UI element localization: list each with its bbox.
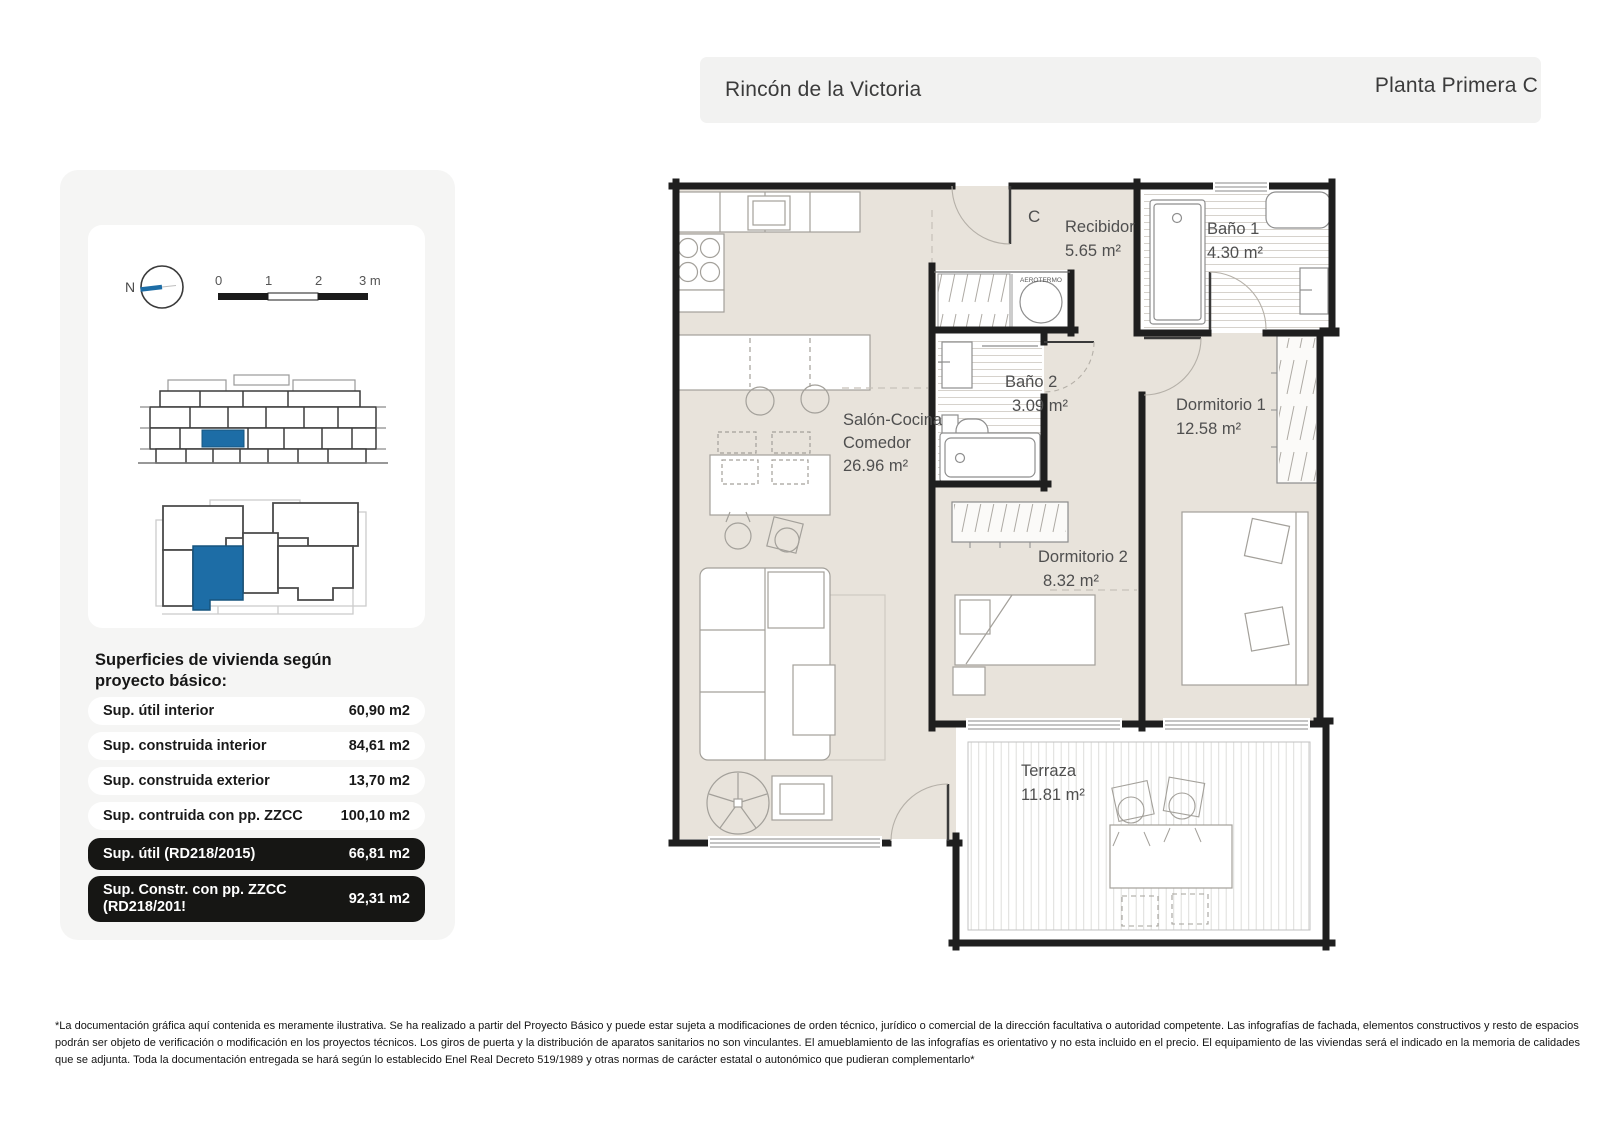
scale-bar: 0 1 2 3 m xyxy=(213,255,388,310)
surface-row: Sup. construida exterior 13,70 m2 xyxy=(88,767,425,795)
disclaimer-line: podrán ser objeto de verificación o modi… xyxy=(55,1035,1600,1052)
highlighted-unit-elevation xyxy=(202,430,244,447)
scale-tick: 3 m xyxy=(359,273,381,288)
aerotermo-unit xyxy=(1020,281,1062,323)
floor-plan: AEROTERMO xyxy=(660,170,1350,960)
scale-tick: 1 xyxy=(265,273,272,288)
surface-row-highlight: Sup. útil (RD218/2015) 66,81 m2 xyxy=(88,838,425,870)
room-name: Baño 2 xyxy=(1005,373,1057,391)
surface-value: 60,90 m2 xyxy=(349,703,410,719)
surface-value: 13,70 m2 xyxy=(349,773,410,789)
surface-value: 66,81 m2 xyxy=(349,846,410,862)
room-name: Terraza xyxy=(1021,762,1077,780)
surface-label: Sup. construida interior xyxy=(103,738,267,754)
surface-row: Sup. contruida con pp. ZZCC 100,10 m2 xyxy=(88,802,425,830)
scale-tick: 2 xyxy=(315,273,322,288)
compass-icon: N xyxy=(120,258,210,318)
surface-label: Sup. Constr. con pp. ZZCC (RD218/201! xyxy=(103,882,287,916)
surface-value: 92,31 m2 xyxy=(349,891,410,907)
surface-label: Sup. útil (RD218/2015) xyxy=(103,846,255,862)
room-area: 11.81 m² xyxy=(1021,786,1085,804)
room-name: Comedor xyxy=(843,434,911,452)
aerotermo-label: AEROTERMO xyxy=(1020,277,1062,284)
surface-value: 100,10 m2 xyxy=(341,808,410,824)
disclaimer-line: *La documentación gráfica aquí contenida… xyxy=(55,1018,1600,1035)
room-area: 8.32 m² xyxy=(1043,572,1099,590)
key-plan-diagram xyxy=(148,488,376,620)
room-name: Baño 1 xyxy=(1207,220,1259,238)
highlighted-unit-keyplan xyxy=(193,546,243,610)
room-name: Salón-Cocina xyxy=(843,411,943,429)
sidebar-panel: N 0 1 2 3 m xyxy=(60,170,455,940)
disclaimer-line: que se adjunta. Toda la documentación en… xyxy=(55,1052,1600,1069)
location-title: Rincón de la Victoria xyxy=(725,78,921,102)
surface-row-highlight: Sup. Constr. con pp. ZZCC (RD218/201! 92… xyxy=(88,876,425,922)
unit-letter: C xyxy=(1028,207,1040,226)
surface-label: Sup. contruida con pp. ZZCC xyxy=(103,808,303,824)
floorplan-sheet: Rincón de la Victoria Planta Primera C N… xyxy=(0,0,1600,1131)
disclaimer: *La documentación gráfica aquí contenida… xyxy=(55,1018,1600,1069)
room-name: Recibidor xyxy=(1065,218,1135,236)
surface-row: Sup. construida interior 84,61 m2 xyxy=(88,732,425,760)
room-name: Dormitorio 2 xyxy=(1038,548,1128,566)
room-area: 26.96 m² xyxy=(843,457,909,475)
compass-north-label: N xyxy=(125,279,135,295)
room-area: 3.09 m² xyxy=(1012,397,1068,415)
surface-row: Sup. útil interior 60,90 m2 xyxy=(88,697,425,725)
surface-label: Sup. útil interior xyxy=(103,703,214,719)
surface-label: Sup. construida exterior xyxy=(103,773,270,789)
room-area: 4.30 m² xyxy=(1207,244,1263,262)
surfaces-title: Superficies de vivienda según proyecto b… xyxy=(95,650,332,692)
room-area: 5.65 m² xyxy=(1065,242,1121,260)
entry-closet: AEROTERMO xyxy=(936,270,1071,330)
surface-value: 84,61 m2 xyxy=(349,738,410,754)
building-elevation-diagram xyxy=(138,370,388,472)
room-name: Dormitorio 1 xyxy=(1176,396,1266,414)
page-title: Planta Primera C xyxy=(1375,74,1538,98)
scale-tick: 0 xyxy=(215,273,222,288)
room-area: 12.58 m² xyxy=(1176,420,1242,438)
